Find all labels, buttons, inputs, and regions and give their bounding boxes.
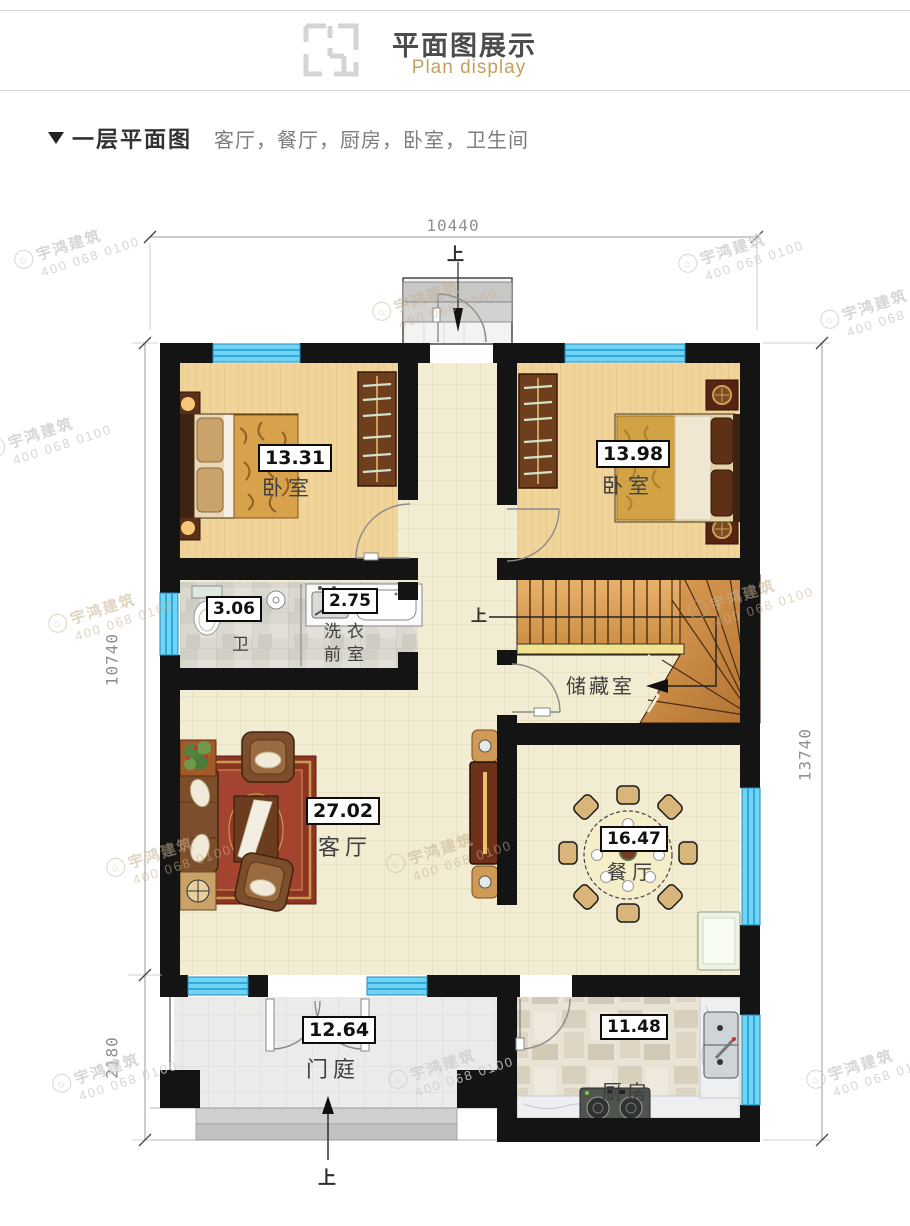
page: { "header": { "title": "平面图展示", "subtitl… (0, 0, 910, 1226)
floorplan-svg (0, 0, 910, 1226)
